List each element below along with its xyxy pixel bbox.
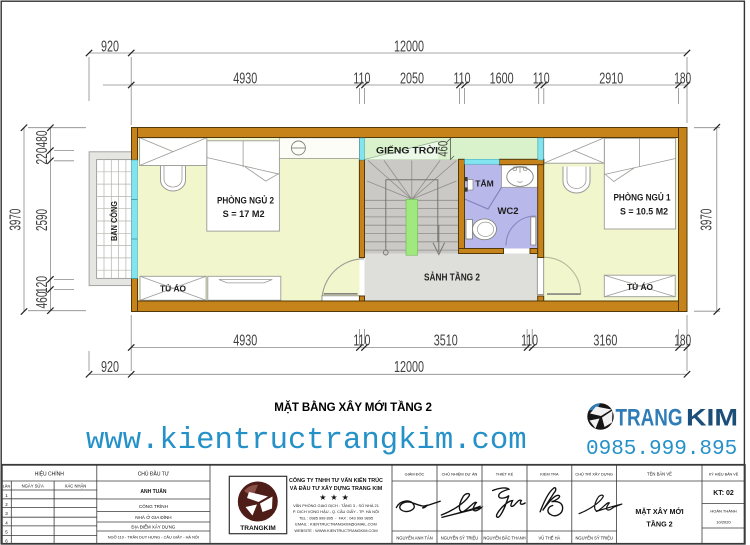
- svg-text:12000: 12000: [394, 39, 424, 56]
- svg-text:NGÕ 110 - TRẦN DUY HƯNG - CẦU: NGÕ 110 - TRẦN DUY HƯNG - CẦU GIẤY - HÀ …: [108, 535, 199, 540]
- svg-text:www.kientructrangkim.com: www.kientructrangkim.com: [86, 424, 527, 458]
- svg-text:NHÀ Ở GIA ĐÌNH: NHÀ Ở GIA ĐÌNH: [135, 514, 171, 520]
- svg-text:12000: 12000: [394, 359, 424, 376]
- svg-text:EMAIL : KIENTRUCTRANGKIM@GMAIL: EMAIL : KIENTRUCTRANGKIM@GMAIL.COM: [295, 522, 376, 527]
- svg-text:CHỦ ĐẦU TƯ: CHỦ ĐẦU TƯ: [138, 471, 170, 478]
- svg-text:CHỦ TRÌ XÂY DỰNG: CHỦ TRÌ XÂY DỰNG: [575, 472, 613, 477]
- svg-text:P. DỊCH VỌNG HẬU - Q. CẦU GIẤY: P. DỊCH VỌNG HẬU - Q. CẦU GIẤY - TP. HÀ …: [293, 509, 379, 514]
- svg-text:110: 110: [353, 333, 370, 350]
- svg-text:ĐỊA ĐIỂM XÂY DỰNG: ĐỊA ĐIỂM XÂY DỰNG: [131, 525, 176, 530]
- svg-text:VŨ THẾ HÀ: VŨ THẾ HÀ: [539, 536, 561, 541]
- svg-text:VÀ ĐẦU TƯ XÂY DỰNG TRANG KIM: VÀ ĐẦU TƯ XÂY DỰNG TRANG KIM: [290, 485, 383, 492]
- svg-text:HIỆU CHỈNH: HIỆU CHỈNH: [35, 470, 65, 478]
- svg-text:KT: 02: KT: 02: [713, 490, 734, 497]
- svg-text:WEBSITE : WWW.KIENTRUCTRANGKIM: WEBSITE : WWW.KIENTRUCTRANGKIM.COM: [294, 528, 377, 533]
- svg-text:THIẾT KẾ: THIẾT KẾ: [496, 472, 514, 477]
- svg-text:110: 110: [353, 71, 370, 88]
- svg-text:CÔNG TRÌNH: CÔNG TRÌNH: [139, 503, 168, 509]
- svg-text:10/2020: 10/2020: [716, 520, 731, 525]
- svg-text:110: 110: [533, 71, 550, 88]
- svg-text:0985.999.895: 0985.999.895: [586, 438, 737, 461]
- svg-text:460: 460: [34, 291, 51, 308]
- svg-text:CÔNG TY TNHH TƯ VẤN KIẾN TRÚC: CÔNG TY TNHH TƯ VẤN KIẾN TRÚC: [289, 476, 383, 484]
- svg-text:CHỦ NHIỆM DỰ ÁN: CHỦ NHIỆM DỰ ÁN: [442, 472, 478, 477]
- svg-text:460: 460: [435, 141, 451, 157]
- svg-text:110: 110: [454, 71, 471, 88]
- svg-text:3970: 3970: [8, 209, 25, 231]
- svg-text:PHÒNG NGỦ 1: PHÒNG NGỦ 1: [614, 192, 672, 204]
- svg-text:KIỂM TRA: KIỂM TRA: [540, 472, 559, 477]
- svg-text:3510: 3510: [434, 333, 458, 350]
- svg-text:TỦ ÁO: TỦ ÁO: [627, 281, 653, 292]
- svg-text:NGUYỄN SỸ TRIỆU: NGUYỄN SỸ TRIỆU: [441, 536, 479, 541]
- svg-text:180: 180: [674, 71, 691, 88]
- svg-text:1600: 1600: [490, 71, 514, 88]
- svg-text:NGUYỄN SỸ TRIỆU: NGUYỄN SỸ TRIỆU: [575, 536, 613, 541]
- svg-text:S = 17 M2: S = 17 M2: [223, 209, 265, 220]
- svg-text:XÁC NHẬN: XÁC NHẬN: [65, 484, 87, 489]
- svg-text:WC2: WC2: [497, 206, 518, 217]
- svg-text:GIÁM ĐỐC: GIÁM ĐỐC: [405, 472, 425, 477]
- svg-text:KIM: KIM: [686, 405, 738, 432]
- svg-text:GIẾNG TRỜI: GIẾNG TRỜI: [376, 145, 438, 156]
- svg-text:2590: 2590: [34, 209, 51, 231]
- svg-text:3160: 3160: [593, 333, 617, 350]
- svg-text:MẶT BẰNG XÂY MỚI TẦNG 2: MẶT BẰNG XÂY MỚI TẦNG 2: [274, 401, 432, 414]
- svg-text:ANH TUẤN: ANH TUẤN: [140, 488, 166, 495]
- svg-text:MẶT XÂY MỚI: MẶT XÂY MỚI: [635, 507, 683, 516]
- svg-text:KÝ HIỆU BẢN VẼ: KÝ HIỆU BẢN VẼ: [709, 472, 739, 477]
- svg-text:★★★: ★★★: [319, 493, 353, 502]
- svg-text:TÊN BẢN VẼ: TÊN BẢN VẼ: [647, 472, 672, 477]
- svg-text:TRANGKIM: TRANGKIM: [240, 525, 276, 532]
- svg-text:4930: 4930: [233, 71, 257, 88]
- svg-text:TẮM: TẮM: [475, 179, 493, 189]
- svg-text:NGUYỄN BẮC THANH: NGUYỄN BẮC THANH: [483, 536, 525, 541]
- svg-text:220: 220: [34, 147, 51, 164]
- svg-text:2910: 2910: [599, 71, 623, 88]
- svg-text:TỦ ÁO: TỦ ÁO: [160, 283, 186, 294]
- svg-text:180: 180: [674, 333, 691, 350]
- svg-text:TẦNG 2: TẦNG 2: [646, 519, 672, 529]
- svg-text:BAN CÔNG: BAN CÔNG: [108, 201, 119, 241]
- svg-text:HOÀN THÀNH: HOÀN THÀNH: [710, 509, 736, 514]
- svg-text:NGUYỄN ANH TÂN: NGUYỄN ANH TÂN: [396, 536, 432, 541]
- svg-text:LẦN: LẦN: [3, 485, 11, 489]
- svg-text:SẢNH TẦNG 2: SẢNH TẦNG 2: [424, 271, 480, 284]
- svg-text:TEL : 0985 999 895 - FAX : 0: TEL : 0985 999 895 - FAX : 043 999 9895: [299, 515, 373, 520]
- svg-text:VĂN PHÒNG GIAO DỊCH : TẦNG 3 -: VĂN PHÒNG GIAO DỊCH : TẦNG 3 - SỐ NHÀ 21: [293, 503, 379, 508]
- svg-text:920: 920: [101, 39, 119, 56]
- svg-text:4930: 4930: [233, 333, 257, 350]
- svg-text:PHÒNG NGỦ 2: PHÒNG NGỦ 2: [217, 195, 274, 207]
- svg-text:TRANG: TRANG: [616, 405, 683, 432]
- svg-text:120: 120: [34, 276, 51, 293]
- svg-text:480: 480: [34, 130, 51, 147]
- svg-text:920: 920: [101, 359, 119, 376]
- svg-text:NGÀY SỬA: NGÀY SỬA: [22, 484, 44, 489]
- svg-text:110: 110: [521, 333, 538, 350]
- svg-text:3970: 3970: [699, 209, 716, 231]
- svg-text:S = 10.5 M2: S = 10.5 M2: [620, 207, 668, 218]
- svg-text:2050: 2050: [400, 71, 424, 88]
